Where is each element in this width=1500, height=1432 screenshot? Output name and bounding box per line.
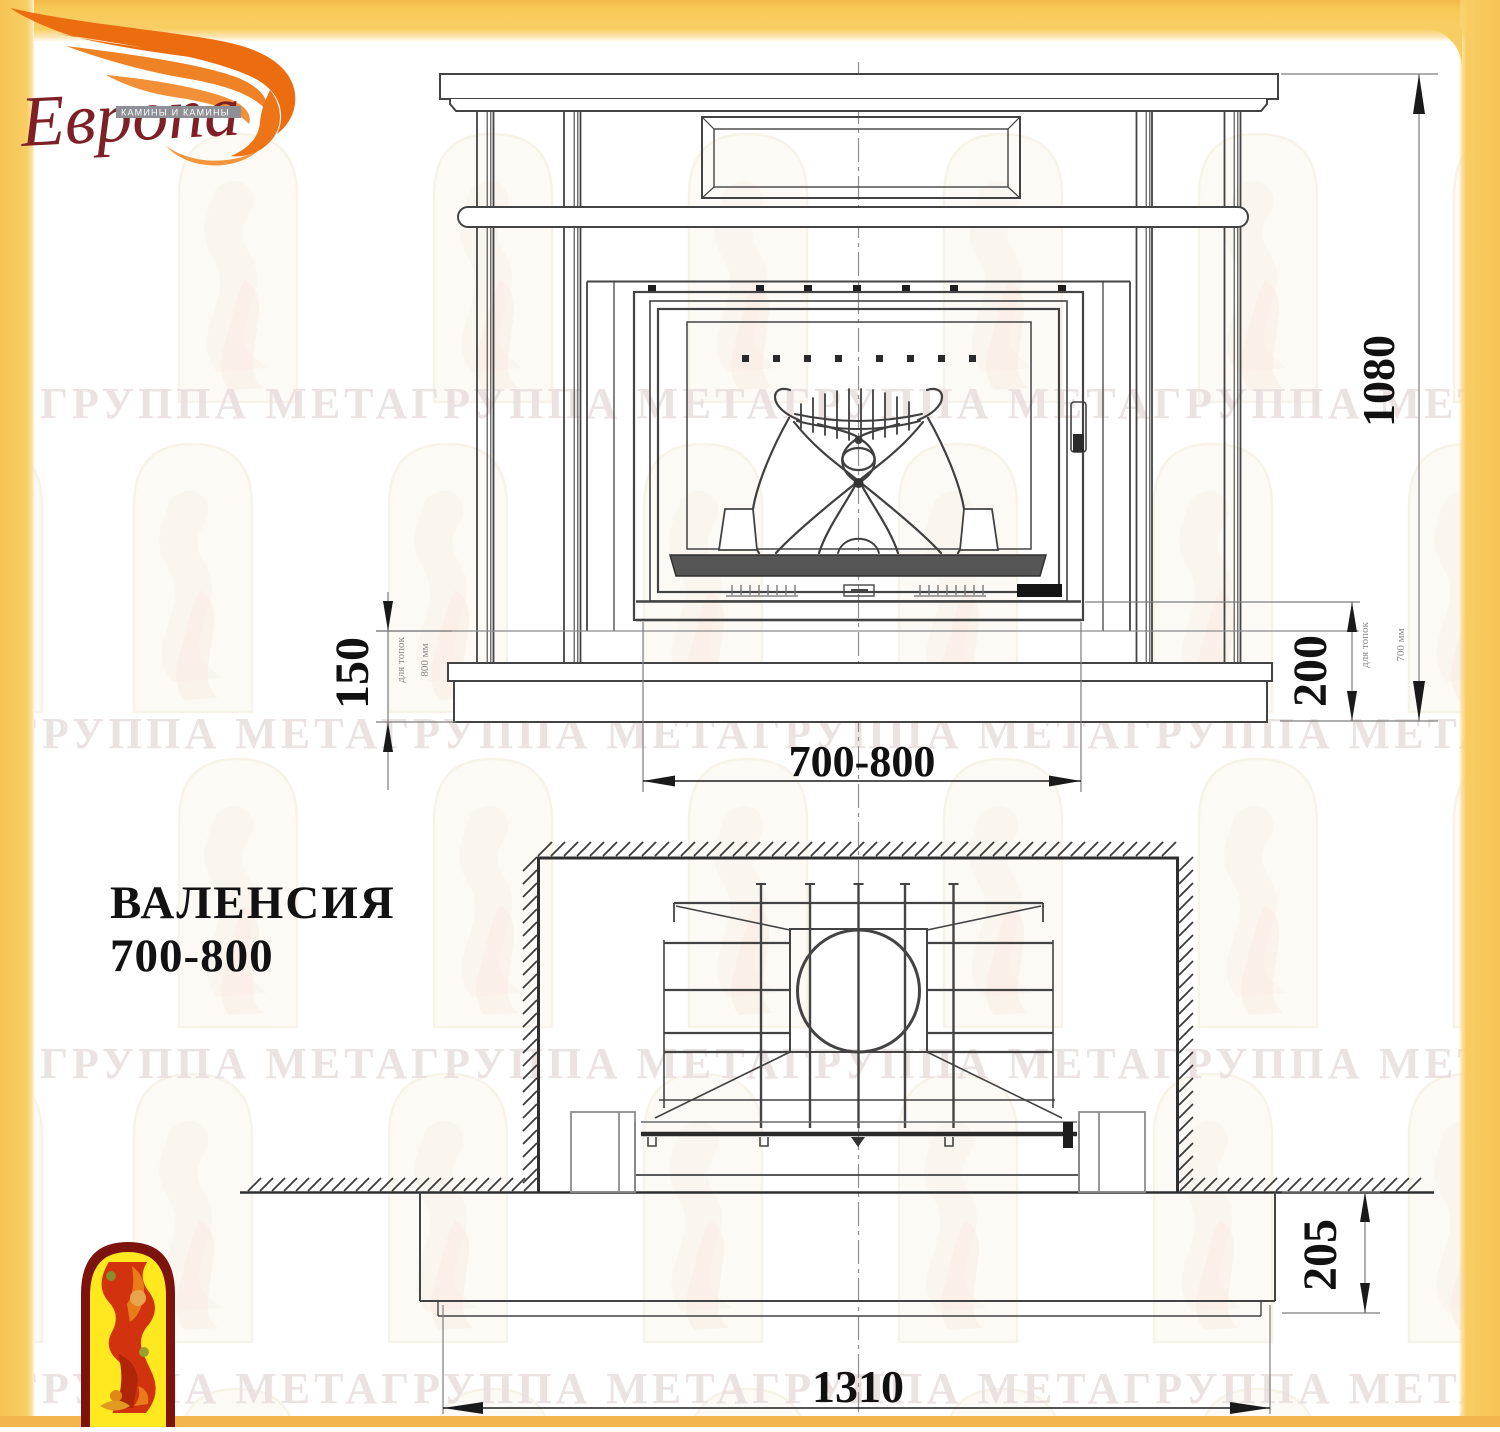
svg-text:150: 150 <box>326 637 379 709</box>
svg-text:200: 200 <box>1284 635 1337 707</box>
svg-text:КАМИНЫ И КАМИНЫ: КАМИНЫ И КАМИНЫ <box>121 108 230 118</box>
svg-text:для топок: для топок <box>395 636 407 682</box>
svg-text:1080: 1080 <box>1353 335 1404 427</box>
svg-text:для топок: для топок <box>1359 621 1371 667</box>
svg-text:700 мм: 700 мм <box>1395 628 1407 661</box>
svg-text:1310: 1310 <box>812 1361 904 1412</box>
svg-text:205: 205 <box>1294 1219 1347 1291</box>
svg-text:700-800: 700-800 <box>789 737 936 786</box>
svg-text:800 мм: 800 мм <box>419 643 431 676</box>
